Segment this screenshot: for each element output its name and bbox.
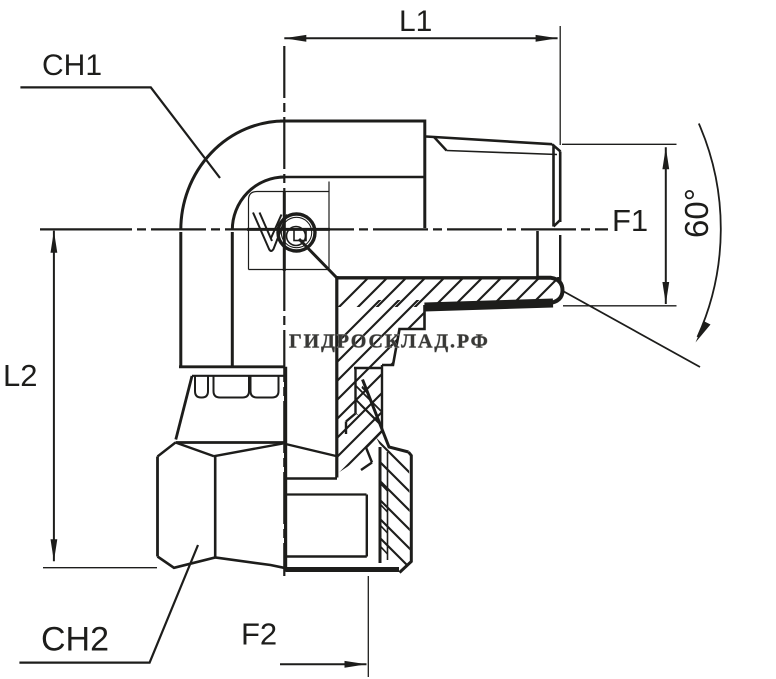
svg-text:CH2: CH2 (41, 621, 109, 659)
svg-text:60°: 60° (678, 188, 715, 238)
svg-text:F2: F2 (241, 617, 277, 652)
svg-text:CH1: CH1 (42, 49, 102, 82)
svg-text:F1: F1 (612, 203, 648, 238)
svg-text:L1: L1 (399, 5, 432, 38)
svg-text:L2: L2 (3, 358, 37, 393)
svg-text:ГИДРОСКЛАД.РФ: ГИДРОСКЛАД.РФ (289, 331, 490, 353)
